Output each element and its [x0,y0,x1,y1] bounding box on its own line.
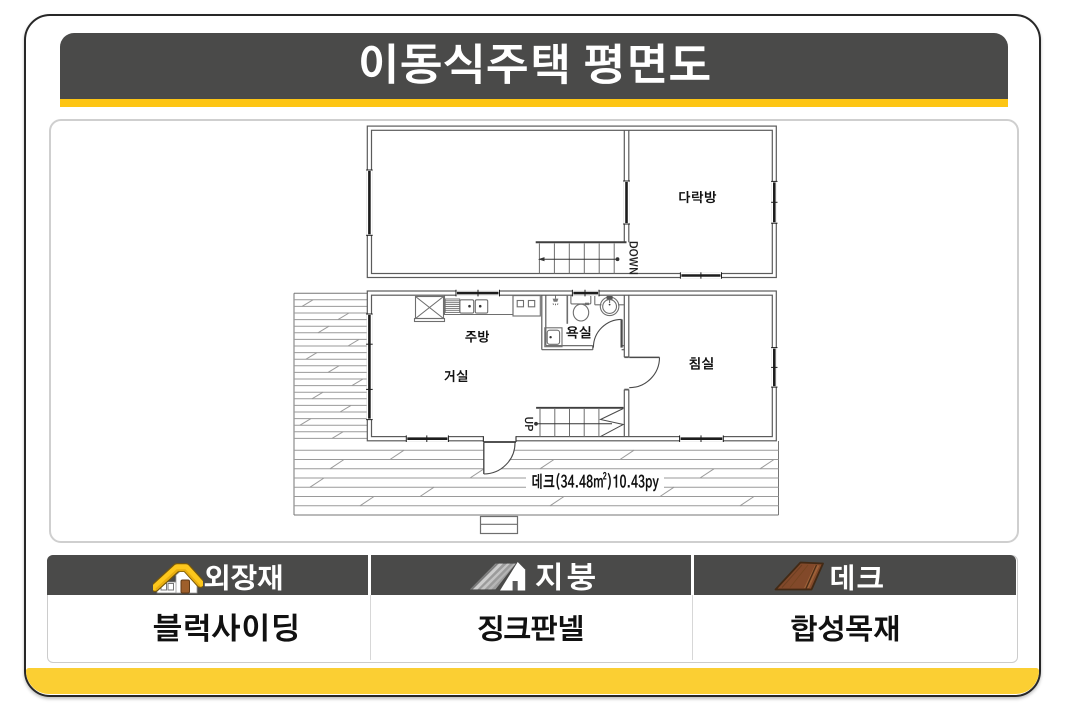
svg-text:거실: 거실 [444,370,469,384]
svg-text:DOWN: DOWN [627,241,639,276]
svg-text:다락방: 다락방 [678,191,717,205]
svg-text:침실: 침실 [688,357,714,372]
svg-text:욕실: 욕실 [566,325,592,340]
svg-text:UP: UP [522,416,534,431]
svg-text:주방: 주방 [465,330,490,344]
